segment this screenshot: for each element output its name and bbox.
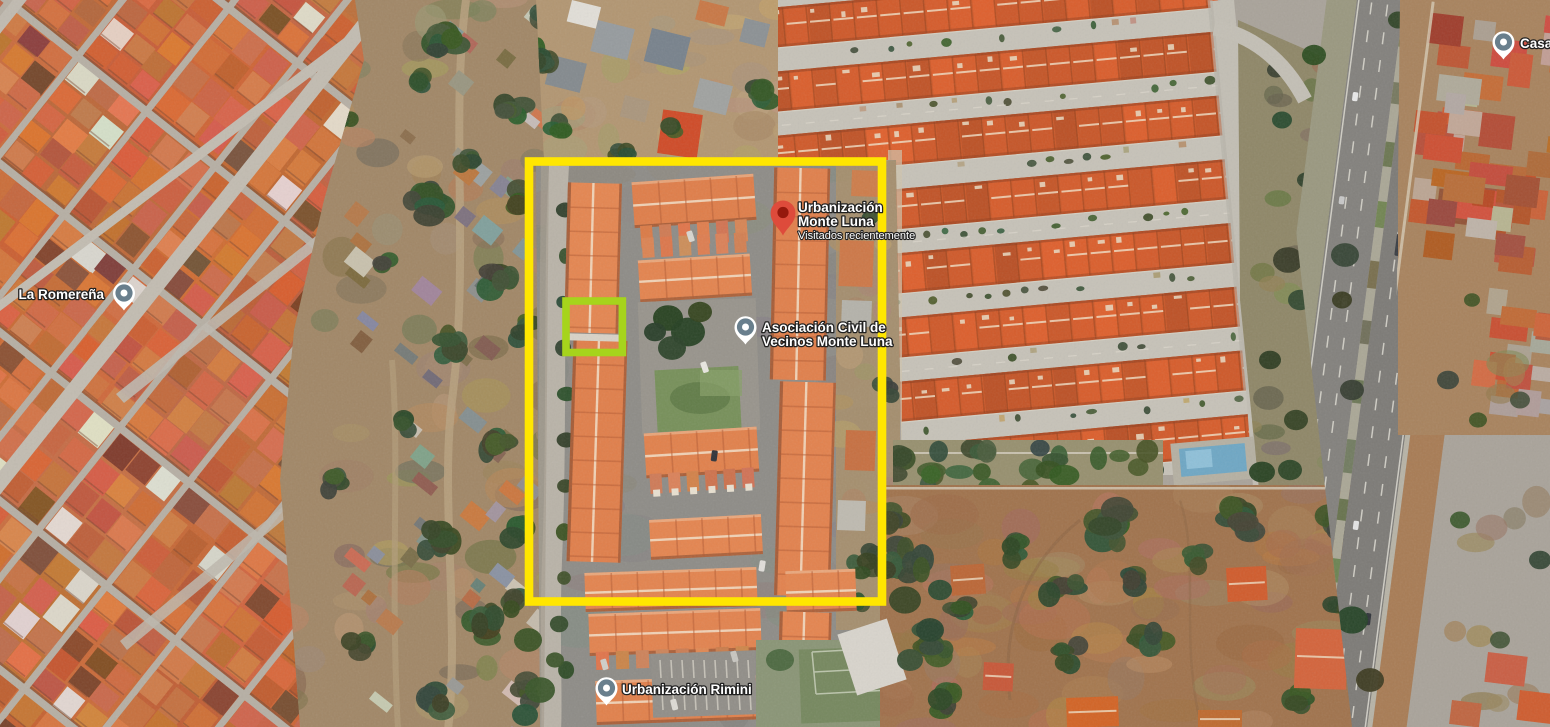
- svg-text:Casas: Casas: [1520, 36, 1550, 51]
- svg-text:La Romereña: La Romereña: [18, 287, 104, 302]
- svg-text:Visitados recientemente: Visitados recientemente: [798, 230, 915, 242]
- svg-text:Asociación Civil de: Asociación Civil de: [762, 320, 886, 335]
- svg-text:Vecinos Monte Luna: Vecinos Monte Luna: [762, 334, 893, 349]
- svg-text:Urbanización: Urbanización: [798, 200, 883, 215]
- svg-text:Urbanización Rimini: Urbanización Rimini: [622, 682, 752, 697]
- svg-text:Monte Luna: Monte Luna: [798, 214, 874, 229]
